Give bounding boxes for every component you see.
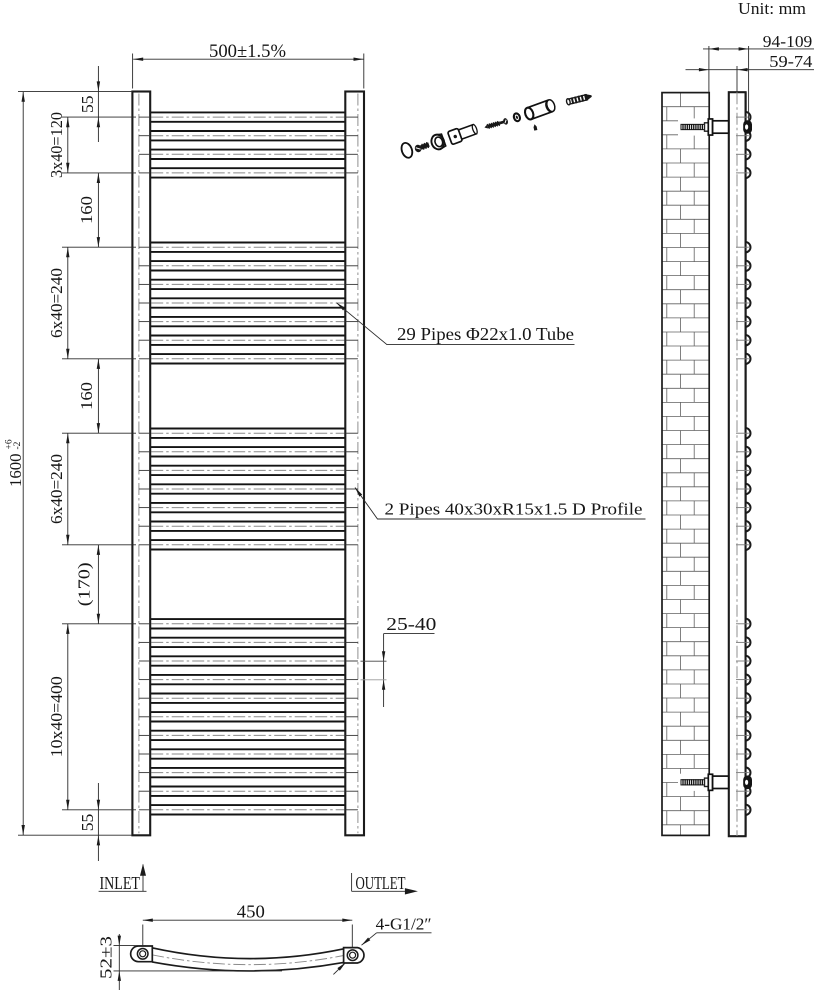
svg-text:3x40=120: 3x40=120 xyxy=(47,112,66,178)
svg-text:160: 160 xyxy=(77,196,96,224)
svg-text:59-74: 59-74 xyxy=(769,52,813,71)
svg-text:160: 160 xyxy=(77,382,96,410)
svg-text:450: 450 xyxy=(237,901,265,921)
svg-text:1600: 1600 xyxy=(6,454,25,488)
svg-text:94-109: 94-109 xyxy=(763,32,813,51)
svg-text:6x40=240: 6x40=240 xyxy=(47,454,66,524)
svg-text:Unit: mm: Unit: mm xyxy=(738,0,806,18)
svg-text:2 Pipes 40x30xR15x1.5 D Profil: 2 Pipes 40x30xR15x1.5 D Profile xyxy=(385,500,643,519)
svg-text:(170): (170) xyxy=(74,562,93,606)
svg-text:52±3: 52±3 xyxy=(97,936,116,979)
svg-text:25-40: 25-40 xyxy=(386,614,436,634)
svg-text:55: 55 xyxy=(78,96,97,114)
svg-text:10x40=400: 10x40=400 xyxy=(47,676,66,757)
svg-text:500±1.5%: 500±1.5% xyxy=(209,41,286,62)
svg-text:6x40=240: 6x40=240 xyxy=(47,268,66,338)
svg-text:29 Pipes Φ22x1.0 Tube: 29 Pipes Φ22x1.0 Tube xyxy=(397,324,574,344)
svg-text:4-G1/2″: 4-G1/2″ xyxy=(376,915,432,934)
svg-text:-2: -2 xyxy=(13,441,23,449)
svg-text:OUTLET: OUTLET xyxy=(356,873,406,893)
svg-text:INLET: INLET xyxy=(100,873,141,893)
svg-text:55: 55 xyxy=(78,814,97,832)
